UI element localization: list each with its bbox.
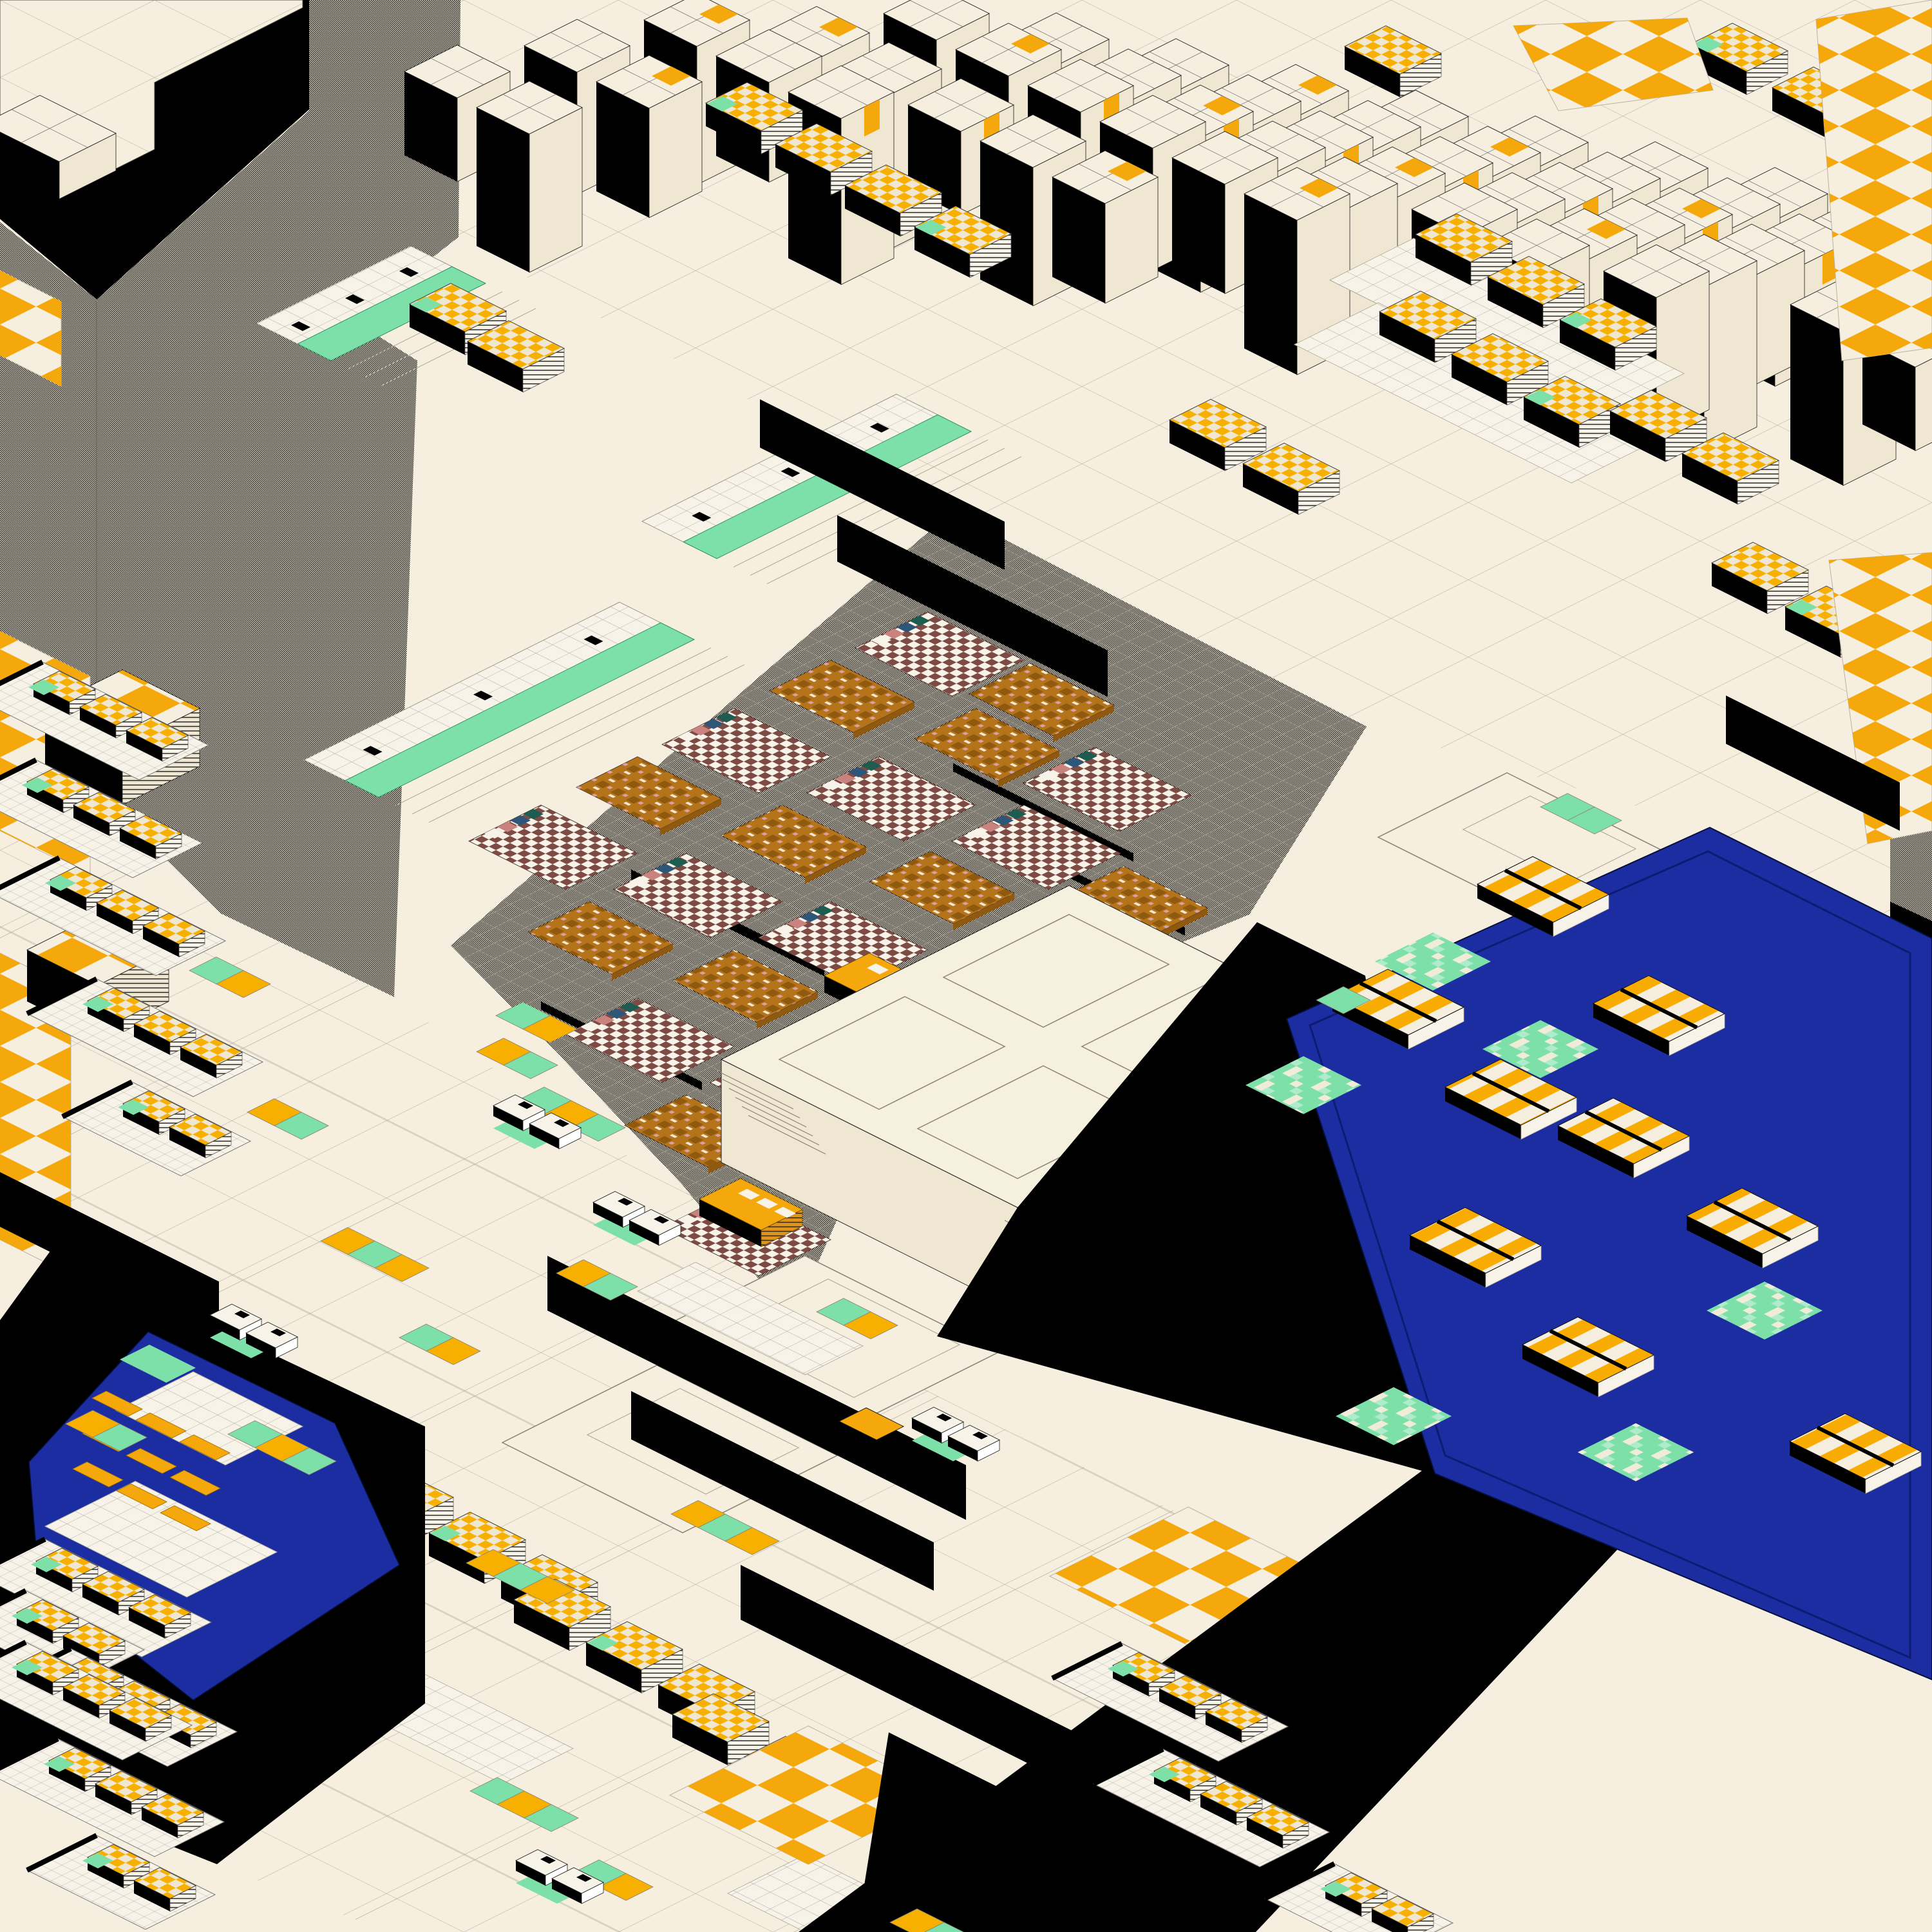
artwork-stage xyxy=(0,0,1932,1932)
artwork-layers xyxy=(0,0,1932,1932)
generative-isometric-artwork xyxy=(0,0,1932,1932)
